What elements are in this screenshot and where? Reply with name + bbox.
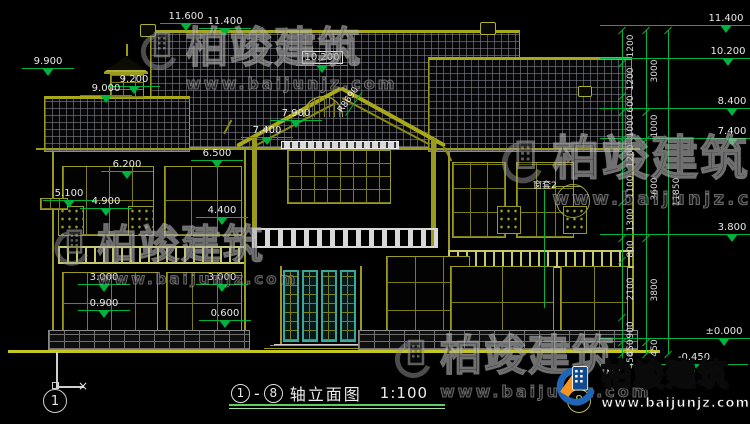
elevation-triangle	[720, 25, 732, 39]
chimney-cap	[104, 56, 148, 72]
dimension-value: 1200	[626, 35, 636, 58]
elevation-marker: 3.800	[706, 222, 750, 248]
title-scale: 1:100	[380, 384, 428, 402]
window-2f-center-lattice	[287, 150, 391, 204]
cad-elevation-drawing: 窗套2 R8690 × 1 8 1 - 8 轴立面图 1:100 柏竣建筑	[0, 0, 750, 424]
elevation-marker: 0.900	[78, 298, 130, 324]
dimension-value: 600	[626, 95, 636, 112]
dimension-value: 11850	[672, 178, 682, 207]
brand-logo-icon	[550, 353, 595, 417]
elevation-triangle	[42, 68, 54, 82]
elevation-value: ±0.000	[705, 326, 742, 337]
elevation-value: 0.600	[211, 308, 240, 319]
dimension-value: 3600	[650, 177, 660, 200]
elevation-marker: 10.200	[702, 46, 750, 72]
elevation-marker: 7.400	[241, 125, 293, 151]
dim-chain-line	[646, 30, 647, 354]
brand-logo-text: 柏竣建筑	[601, 359, 750, 393]
elevation-marker: 4.900	[80, 196, 132, 222]
elevation-value: 11.400	[208, 16, 243, 27]
elevation-value: 0.900	[90, 298, 119, 309]
elevation-triangle	[722, 58, 734, 72]
dimension-value: 3000	[650, 60, 660, 83]
elevation-marker: 6.200	[101, 159, 153, 185]
elevation-triangle	[100, 95, 112, 109]
ucs-x-label: ×	[78, 379, 88, 393]
entrance-step-1	[270, 345, 370, 346]
elevation-triangle	[216, 217, 228, 231]
elevation-triangle	[63, 200, 75, 214]
elevation-triangle	[316, 65, 328, 79]
balcony-railing-center	[252, 228, 438, 248]
elevation-marker: 10.200	[296, 51, 348, 79]
axis-bubble-1-label: 1	[51, 394, 59, 409]
title-name: 轴立面图	[290, 381, 362, 405]
dimension-value: 1200	[626, 144, 636, 167]
title-axis-from: 1	[231, 384, 250, 403]
dimension-value: 1000	[650, 114, 660, 137]
elevation-marker: 9.000	[80, 83, 132, 109]
balcony-railing-left	[58, 246, 244, 264]
elevation-value: 8.400	[718, 96, 747, 107]
title-dash: -	[254, 384, 260, 403]
elevation-triangle	[121, 171, 133, 185]
elevation-value: 11.400	[709, 13, 744, 24]
dimension-value: 3800	[650, 279, 660, 302]
elevation-marker: 3.000	[78, 272, 130, 298]
entrance-door-panel	[340, 270, 356, 342]
brand-logo-url: www.baijunjz.com	[601, 396, 750, 411]
elevation-triangle	[219, 28, 231, 42]
dimension-value: 2100	[626, 277, 636, 300]
elevation-triangle	[261, 137, 273, 151]
title-axis-to: 8	[264, 384, 283, 403]
drawing-title: 1 - 8 轴立面图 1:100	[231, 381, 428, 405]
elevation-triangle	[211, 160, 223, 174]
elevation-value: 3.000	[208, 272, 237, 283]
elevation-marker: 4.400	[196, 205, 248, 231]
elevation-triangle	[216, 284, 228, 298]
elevation-value: 3.000	[90, 272, 119, 283]
chimney-finial	[126, 44, 128, 56]
wall-edge-left	[52, 152, 54, 350]
entrance-door-panel	[321, 270, 337, 342]
elevation-value: 7.400	[253, 125, 282, 136]
elevation-value: 9.900	[34, 56, 63, 67]
eave-line-right	[420, 148, 640, 150]
elevation-triangle	[100, 208, 112, 222]
dimension-value: 1300	[626, 209, 636, 232]
elevation-value: 4.900	[92, 196, 121, 207]
elevation-triangle	[726, 108, 738, 122]
elevation-triangle	[98, 284, 110, 298]
callout-vertical-line	[544, 190, 545, 308]
window-trim-callout-circle	[556, 184, 590, 218]
entrance-door-panel	[302, 270, 318, 342]
elevation-value: 6.500	[203, 148, 232, 159]
elevation-marker: 3.000	[196, 272, 248, 298]
window-trim-callout-label: 窗套2	[533, 178, 557, 191]
dimension-value: 1100	[626, 176, 636, 199]
entrance-door-panel	[283, 270, 299, 342]
window-1f-right-a	[450, 266, 554, 340]
elevation-value: 3.800	[718, 222, 747, 233]
elevation-triangle	[726, 234, 738, 248]
elevation-marker: 11.400	[199, 16, 251, 42]
window-1f-right-b	[560, 266, 628, 340]
ridge-ornament-right	[480, 22, 496, 35]
elevation-marker: 11.400	[700, 13, 750, 39]
door-jamb-left	[280, 266, 282, 346]
elevation-value: 6.200	[113, 159, 142, 170]
dim-chain-line	[668, 30, 669, 354]
elevation-marker: 7.400	[706, 126, 750, 152]
elevation-value: 9.000	[92, 83, 121, 94]
elevation-value: 7.900	[282, 108, 311, 119]
wall-line-a	[244, 150, 246, 332]
dimension-value: 1200	[626, 68, 636, 91]
elevation-marker: 9.900	[22, 56, 74, 82]
elevation-value: 10.200	[711, 46, 746, 57]
ridge-ornament-wing	[578, 86, 592, 97]
title-underline-2	[229, 408, 445, 409]
elevation-triangle	[219, 320, 231, 334]
carved-beam	[281, 141, 399, 149]
dimension-value: 800	[626, 240, 636, 257]
ridge-ornament-left	[140, 24, 156, 37]
elevation-triangle	[180, 23, 192, 37]
axis-bubble-1: 1	[43, 389, 67, 413]
elevation-value: 4.400	[208, 205, 237, 216]
elevation-marker: 6.500	[191, 148, 243, 174]
elevation-triangle	[726, 138, 738, 152]
elevation-marker: 8.400	[706, 96, 750, 122]
elevation-value: 10.200	[302, 51, 343, 64]
dimension-value: 1000	[626, 114, 636, 137]
brand-logo: 柏竣建筑 www.baijunjz.com	[550, 346, 750, 424]
elevation-triangle	[98, 310, 110, 324]
dimension-value: 900	[626, 321, 636, 338]
ucs-origin	[52, 382, 59, 389]
elevation-value: 7.400	[718, 126, 747, 137]
elevation-marker: 0.600	[199, 308, 251, 334]
lattice-panel-c	[497, 206, 521, 234]
